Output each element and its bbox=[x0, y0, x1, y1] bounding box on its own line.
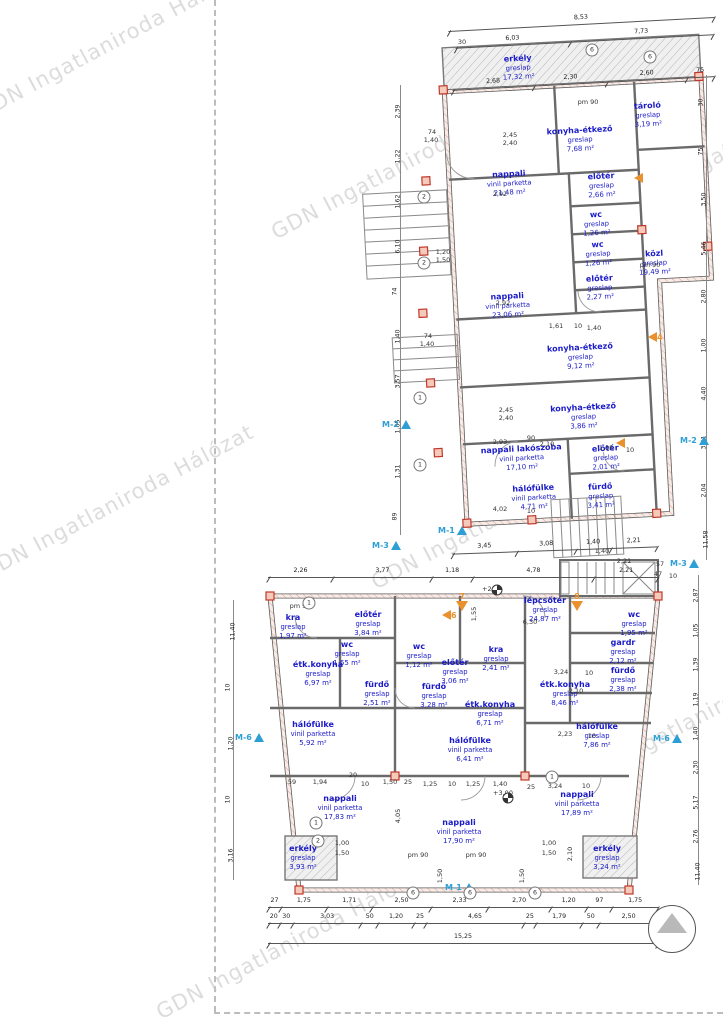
room-name: fürdő bbox=[609, 666, 636, 676]
north-arrow-needle bbox=[657, 913, 687, 933]
dimension-segment: 74 bbox=[392, 287, 399, 295]
dimension-segment: 1,31 bbox=[395, 464, 402, 478]
room-finish: greslap bbox=[576, 732, 618, 741]
room-label: erkélygreslap3,24 m² bbox=[593, 844, 621, 872]
section-marker-triangle-icon bbox=[401, 420, 411, 429]
room-finish: greslap bbox=[354, 620, 381, 629]
room-finish: greslap bbox=[620, 620, 647, 629]
dimension-segment: 1,20 bbox=[551, 897, 587, 908]
room-label: nappalivinil parketta17,83 m² bbox=[318, 794, 363, 822]
room-label: erkélygreslap3,93 m² bbox=[289, 844, 317, 872]
dimension-segment: 11,58 bbox=[703, 530, 710, 548]
dimension-segment: 89 bbox=[392, 512, 399, 520]
room-label: konyha-étkezőgreslap3,86 m² bbox=[550, 401, 617, 433]
room-finish: greslap bbox=[465, 710, 515, 719]
room-area: 17,90 m² bbox=[437, 837, 482, 846]
room-name: gardr bbox=[609, 638, 636, 648]
dimension-chain-row: 20303,03501,20254,65251,79502,50 bbox=[268, 913, 658, 924]
axis-number-circle: 1 bbox=[303, 597, 316, 610]
annotation-text: 10 bbox=[574, 322, 582, 330]
room-name: kra bbox=[482, 645, 509, 655]
dimension-segment: 1,00 bbox=[701, 338, 708, 352]
room-area: 6,97 m² bbox=[293, 679, 343, 688]
room-finish: greslap bbox=[405, 652, 432, 661]
dimension-segment: 2,21 bbox=[610, 536, 657, 549]
room-finish: greslap bbox=[420, 692, 447, 701]
room-name: hálófülke bbox=[291, 720, 336, 730]
room-name: nappali bbox=[555, 790, 600, 800]
dimension-segment: 15,25 bbox=[268, 933, 658, 944]
dimension-segment: 2,87 bbox=[693, 589, 700, 603]
room-name: hálófülke bbox=[576, 722, 618, 732]
room-name: kra bbox=[279, 613, 306, 623]
dimension-segment: 2,26 bbox=[268, 567, 333, 578]
dimension-segment: 5,46 bbox=[701, 241, 708, 255]
room-area: 3,06 m² bbox=[441, 677, 468, 686]
room-label: konyha-étkezőgreslap7,68 m² bbox=[546, 124, 613, 156]
room-finish: greslap bbox=[363, 690, 390, 699]
view-marker-7: 7 bbox=[456, 592, 468, 611]
section-marker-triangle-icon bbox=[689, 559, 699, 568]
section-marker-triangle-icon bbox=[254, 733, 264, 742]
floorplan-canvas: GDN Ingatlaniroda HálózatGDN Ingatlaniro… bbox=[0, 0, 723, 1024]
level-marker-icon bbox=[503, 793, 514, 804]
dimension-segment: 25 bbox=[524, 913, 537, 924]
dimension-segment: 1,75 bbox=[612, 897, 658, 908]
annotation-text: 1,50 bbox=[335, 849, 349, 857]
view-marker-label: 6 bbox=[451, 611, 457, 620]
section-marker-m-1: M-1 bbox=[438, 526, 467, 535]
north-compass-icon bbox=[648, 905, 696, 953]
room-area: 2,12 m² bbox=[609, 657, 636, 666]
dimension-segment: 50 bbox=[361, 913, 378, 924]
room-name: nappali bbox=[437, 818, 482, 828]
view-marker-label: 8 bbox=[574, 592, 580, 601]
room-label: előtérgreslap2,66 m² bbox=[587, 171, 616, 201]
annotation-text: pm 90 bbox=[408, 851, 429, 859]
axis-number-circle: 1 bbox=[414, 459, 427, 472]
annotation-text: 1,61 bbox=[549, 322, 563, 330]
dimension-segment: 2,50 bbox=[372, 897, 431, 908]
axis-number-circle: 6 bbox=[586, 44, 599, 57]
room-area: 8,46 m² bbox=[540, 699, 590, 708]
axis-number-circle: 2 bbox=[312, 835, 325, 848]
room-label: fürdőgreslap3,41 m² bbox=[586, 481, 615, 511]
room-label: nappalivinil parketta17,89 m² bbox=[555, 790, 600, 818]
annotation-text: 1,00 bbox=[335, 839, 349, 847]
annotation-text: 1,40 bbox=[424, 136, 438, 144]
axis-number-circle: 6 bbox=[407, 887, 420, 900]
room-label: wcgreslap1,12 m² bbox=[405, 642, 432, 670]
annotation-text: 74 bbox=[428, 128, 436, 136]
room-label: hálófülkegreslap7,86 m² bbox=[576, 722, 618, 750]
view-arrow-marker bbox=[634, 173, 643, 183]
room-label: nappalivinil parketta17,90 m² bbox=[437, 818, 482, 846]
room-label: fürdőgreslap2,38 m² bbox=[609, 666, 636, 694]
annotation-text: 2,10 bbox=[569, 687, 583, 695]
room-finish: greslap bbox=[593, 854, 621, 863]
dimension-segment: 4,40 bbox=[701, 387, 708, 401]
dimension-segment: 3,03 bbox=[293, 913, 361, 924]
annotation-text: 30 bbox=[458, 38, 466, 46]
annotation-text: 10 bbox=[585, 669, 593, 677]
section-marker-triangle-icon bbox=[391, 541, 401, 550]
annotation-text: 10 bbox=[448, 780, 456, 788]
dimension-segment: 30 bbox=[280, 913, 293, 924]
room-label: hálófülkevinil parketta6,41 m² bbox=[448, 736, 493, 764]
dimension-segment: 1,79 bbox=[536, 913, 582, 924]
section-marker-m-3: M-3 bbox=[670, 559, 699, 568]
dimension-segment: 11,40 bbox=[230, 622, 237, 640]
annotation-text: 1,40 bbox=[493, 780, 507, 788]
dimension-segment: 10 bbox=[225, 795, 232, 803]
section-marker-triangle-icon bbox=[672, 734, 682, 743]
room-label: konyha-étkezőgreslap9,12 m² bbox=[547, 341, 614, 373]
dimension-segment: 27 bbox=[268, 897, 281, 908]
annotation-text: 1,94 bbox=[313, 778, 327, 786]
annotation-text: 4,05 bbox=[394, 809, 402, 823]
dimension-segment: 3,45 bbox=[452, 541, 517, 554]
dimension-segment: 2,04 bbox=[701, 484, 708, 498]
annotation-text: 25 bbox=[527, 783, 535, 791]
section-marker-triangle-icon bbox=[699, 436, 709, 445]
annotation-text: 10 bbox=[361, 780, 369, 788]
dimension-segment: 3,08 bbox=[517, 539, 577, 552]
dimension-segment: 1,05 bbox=[693, 623, 700, 637]
room-name: nappali bbox=[318, 794, 363, 804]
annotation-text: 25 bbox=[404, 778, 412, 786]
room-finish: greslap bbox=[482, 655, 509, 664]
room-area: 3,24 m² bbox=[593, 863, 621, 872]
room-area: 7,86 m² bbox=[576, 741, 618, 750]
annotation-text: 2,21 bbox=[617, 557, 631, 565]
room-area: 3,41 m² bbox=[587, 501, 615, 512]
room-name: előtér bbox=[441, 658, 468, 668]
room-name: étk.konyha bbox=[293, 660, 343, 670]
dimension-segment: 1,18 bbox=[432, 567, 473, 578]
room-name: hálófülke bbox=[448, 736, 493, 746]
dimension-chain-row: 271,751,712,502,332,701,20971,75 bbox=[268, 897, 658, 908]
dimension-segment: 3,77 bbox=[333, 567, 432, 578]
annotation-text: 1,50 bbox=[436, 256, 450, 264]
section-marker-label: M-2 bbox=[382, 420, 399, 429]
annotation-text: 1,00 bbox=[542, 839, 556, 847]
room-label: előtérgreslap3,84 m² bbox=[354, 610, 381, 638]
dimension-segment: 3,50 bbox=[701, 193, 708, 207]
room-label: étk.konyhagreslap6,71 m² bbox=[465, 700, 515, 728]
annotation-text: 2,93 bbox=[493, 438, 507, 446]
axis-number-circle: 6 bbox=[529, 887, 542, 900]
room-area: 2,51 m² bbox=[363, 699, 390, 708]
dimension-segment: 1,20 bbox=[378, 913, 414, 924]
room-finish: vinil parketta bbox=[437, 828, 482, 837]
room-finish: vinil parketta bbox=[318, 804, 363, 813]
dimension-segment: 1,40 bbox=[395, 329, 402, 343]
annotation-text: 59 bbox=[288, 778, 296, 786]
room-finish: greslap bbox=[441, 668, 468, 677]
dimension-segment: 4,65 bbox=[426, 913, 523, 924]
annotation-text: 1,20 bbox=[436, 248, 450, 256]
room-label: wcgreslap1,26 m² bbox=[584, 239, 613, 269]
annotation-text: 2,92 bbox=[496, 299, 510, 307]
axis-number-circle: 1 bbox=[414, 392, 427, 405]
annotation-text: 1,25 bbox=[423, 780, 437, 788]
room-area: 1,97 m² bbox=[279, 632, 306, 641]
annotation-text: 74 bbox=[424, 332, 432, 340]
room-name: wc bbox=[405, 642, 432, 652]
annotation-text: 2,45 bbox=[499, 406, 513, 414]
axis-number-circle: 6 bbox=[464, 887, 477, 900]
room-label: wcgreslap1,95 m² bbox=[620, 610, 647, 638]
dimension-segment: 97 bbox=[587, 897, 613, 908]
annotation-text: 57 bbox=[656, 560, 664, 568]
annotation-text: 6,30 bbox=[523, 618, 537, 626]
dimension-segment: 20 bbox=[268, 913, 280, 924]
room-area: 2,38 m² bbox=[609, 685, 636, 694]
section-marker-m-6: M-6 bbox=[235, 733, 264, 742]
dimension-segment: 3,16 bbox=[228, 848, 235, 862]
annotation-text: 1,40 bbox=[587, 324, 601, 332]
view-marker-triangle-icon bbox=[634, 173, 643, 183]
room-area: 2,66 m² bbox=[588, 190, 616, 201]
section-marker-m-3: M-3 bbox=[372, 541, 401, 550]
view-marker-6: 6 bbox=[442, 610, 457, 620]
room-name: erkély bbox=[593, 844, 621, 854]
dimension-segment: 2,21 bbox=[594, 567, 658, 578]
section-marker-label: M-1 bbox=[445, 883, 462, 892]
room-area: 1,12 m² bbox=[405, 661, 432, 670]
annotation-text: 10 bbox=[626, 446, 634, 454]
view-marker-label: 7 bbox=[459, 592, 465, 601]
room-area: 2,41 m² bbox=[482, 664, 509, 673]
room-area: 3,84 m² bbox=[354, 629, 381, 638]
annotation-text: 1,05 bbox=[599, 444, 613, 452]
axis-number-circle: 2 bbox=[418, 191, 431, 204]
annotation-text: 2,40 bbox=[499, 414, 513, 422]
annotation-text: 2,23 bbox=[558, 730, 572, 738]
upper-floor-plan: erkélygreslap17,32 m²konyha-étkezőgresla… bbox=[346, 6, 723, 579]
section-marker-m-2: M-2 bbox=[382, 420, 411, 429]
dimension-segment: 2,80 bbox=[701, 290, 708, 304]
dimension-segment: 4,78 bbox=[473, 567, 595, 578]
room-label: tárológreslap3,19 m² bbox=[633, 100, 662, 130]
annotation-text: 1,50 bbox=[436, 869, 444, 883]
view-marker-4: 4 bbox=[648, 332, 663, 342]
dimension-segment: 2,70 bbox=[488, 897, 551, 908]
room-area: 6,41 m² bbox=[448, 755, 493, 764]
annotation-text: 4,02 bbox=[493, 505, 507, 513]
dimension-segment: 75 bbox=[686, 66, 714, 78]
annotation-text: 1,40 bbox=[595, 547, 609, 555]
dimension-chain-row: 15,25 bbox=[268, 933, 658, 944]
dimension-segment: 75 bbox=[698, 147, 705, 155]
section-marker-label: M-6 bbox=[653, 734, 670, 743]
dimension-chain-row: 2,263,771,184,782,21 bbox=[268, 567, 658, 578]
room-finish: greslap bbox=[333, 650, 360, 659]
dimension-segment: 2,76 bbox=[693, 830, 700, 844]
room-label: fürdőgreslap2,51 m² bbox=[363, 680, 390, 708]
annotation-text: 10 bbox=[582, 782, 590, 790]
section-marker-m-2: M-2 bbox=[680, 436, 709, 445]
annotation-text: 1,25 bbox=[466, 780, 480, 788]
dimension-segment: 2,33 bbox=[431, 897, 487, 908]
axis-number-circle: 6 bbox=[644, 51, 657, 64]
annotation-text: pm 90 bbox=[578, 98, 599, 106]
section-marker-m-6: M-6 bbox=[653, 734, 682, 743]
annotation-text: 47 bbox=[654, 570, 662, 578]
view-marker-triangle-icon bbox=[442, 610, 451, 620]
room-area: 2,01 m² bbox=[592, 462, 620, 473]
room-finish: vinil parketta bbox=[291, 730, 336, 739]
annotation-text: 90 bbox=[527, 434, 535, 442]
room-finish: greslap bbox=[609, 676, 636, 685]
room-finish: greslap bbox=[279, 623, 306, 632]
room-finish: greslap bbox=[293, 670, 343, 679]
view-arrow-marker bbox=[616, 438, 625, 448]
dimension-segment: 1,40 bbox=[693, 726, 700, 740]
dimension-segment: 1,39 bbox=[693, 658, 700, 672]
dimension-segment: 30 bbox=[698, 99, 705, 107]
annotation-text: pm 90 bbox=[466, 851, 487, 859]
axis-number-circle: 2 bbox=[418, 257, 431, 270]
room-area: 17,83 m² bbox=[318, 813, 363, 822]
view-marker-8: 8 bbox=[571, 592, 583, 611]
room-label: kragreslap2,41 m² bbox=[482, 645, 509, 673]
view-marker-label: 4 bbox=[657, 333, 663, 342]
room-label: kragreslap1,97 m² bbox=[279, 613, 306, 641]
level-marker-icon bbox=[492, 585, 503, 596]
axis-number-circle: 1 bbox=[546, 771, 559, 784]
room-label: előtérgreslap2,27 m² bbox=[585, 273, 614, 303]
section-marker-label: M-2 bbox=[680, 436, 697, 445]
view-marker-triangle-icon bbox=[571, 601, 583, 611]
room-label: étk.konyhagreslap6,97 m² bbox=[293, 660, 343, 688]
upper-room-labels: erkélygreslap17,32 m²konyha-étkezőgresla… bbox=[346, 6, 723, 579]
property-boundary-line-vertical bbox=[214, 0, 216, 1012]
room-name: wc bbox=[333, 640, 360, 650]
dimension-segment: 1,20 bbox=[228, 736, 235, 750]
room-name: étk.konyha bbox=[465, 700, 515, 710]
section-marker-label: M-3 bbox=[372, 541, 389, 550]
room-area: 17,89 m² bbox=[555, 809, 600, 818]
room-finish: vinil parketta bbox=[448, 746, 493, 755]
dimension-segment: 6,10 bbox=[395, 239, 402, 253]
room-area: 1,95 m² bbox=[620, 629, 647, 638]
view-marker-triangle-icon bbox=[616, 438, 625, 448]
dimension-segment: 11,40 bbox=[695, 862, 702, 880]
room-area: 5,92 m² bbox=[291, 739, 336, 748]
section-marker-triangle-icon bbox=[457, 526, 467, 535]
annotation-text: 2,92 bbox=[493, 190, 507, 198]
dimension-segment: 10 bbox=[225, 683, 232, 691]
annotation-text: 10 bbox=[588, 732, 596, 740]
room-name: fürdő bbox=[363, 680, 390, 690]
annotation-text: 1,50 bbox=[518, 869, 526, 883]
annotation-text: 1,50 bbox=[383, 778, 397, 786]
annotation-text: 10 bbox=[669, 572, 677, 580]
room-finish: greslap bbox=[524, 606, 566, 615]
annotation-text: 2,10 bbox=[540, 440, 554, 448]
dimension-segment: 5,17 bbox=[693, 795, 700, 809]
room-area: 23,06 m² bbox=[486, 310, 531, 321]
section-marker-label: M-1 bbox=[438, 526, 455, 535]
room-name: wc bbox=[620, 610, 647, 620]
dimension-segment: 2,30 bbox=[693, 761, 700, 775]
annotation-text: pm 90 bbox=[640, 261, 661, 269]
dimension-segment: 1,19 bbox=[693, 692, 700, 706]
annotation-text: 1,50 bbox=[542, 849, 556, 857]
annotation-text: 2,45 bbox=[503, 131, 517, 139]
room-name: lépcsőtér bbox=[524, 596, 566, 606]
dimension-segment: 50 bbox=[582, 913, 599, 924]
room-label: wcgreslap1,26 m² bbox=[582, 209, 611, 239]
room-area: 2,27 m² bbox=[586, 292, 614, 303]
room-area: 6,71 m² bbox=[465, 719, 515, 728]
annotation-text: 2,40 bbox=[503, 139, 517, 147]
property-boundary-line-horizontal bbox=[214, 1012, 723, 1014]
room-area: 3,28 m² bbox=[420, 701, 447, 710]
dimension-segment: 1,75 bbox=[281, 897, 327, 908]
room-finish: vinil parketta bbox=[555, 800, 600, 809]
view-marker-triangle-icon bbox=[456, 601, 468, 611]
room-area: 19,49 m² bbox=[639, 267, 671, 278]
annotation-text: 3,24 bbox=[554, 668, 568, 676]
watermark-text: GDN Ingatlaniroda Hálózat bbox=[0, 420, 258, 584]
room-area: 1,26 m² bbox=[585, 258, 613, 269]
annotation-text: 10 bbox=[527, 507, 535, 515]
room-label: hálófülkevinil parketta5,92 m² bbox=[291, 720, 336, 748]
room-label: gardrgreslap2,12 m² bbox=[609, 638, 636, 666]
section-marker-label: M-6 bbox=[235, 733, 252, 742]
dimension-segment: 1,62 bbox=[395, 194, 402, 208]
section-marker-label: M-3 bbox=[670, 559, 687, 568]
dimension-segment: 1,22 bbox=[395, 149, 402, 163]
axis-number-circle: 1 bbox=[310, 817, 323, 830]
annotation-text: 2,10 bbox=[566, 847, 574, 861]
room-area: 3,93 m² bbox=[289, 863, 317, 872]
dimension-segment: 25 bbox=[414, 913, 427, 924]
room-area: 3,19 m² bbox=[634, 120, 662, 131]
annotation-text: 20 bbox=[349, 771, 357, 779]
dimension-segment: 3,57 bbox=[395, 374, 402, 388]
annotation-text: 1,55 bbox=[470, 607, 478, 621]
annotation-text: 1,40 bbox=[420, 340, 434, 348]
room-name: előtér bbox=[354, 610, 381, 620]
dimension-segment: 1,71 bbox=[327, 897, 372, 908]
room-finish: greslap bbox=[609, 648, 636, 657]
room-label: előtérgreslap3,06 m² bbox=[441, 658, 468, 686]
dimension-segment: 2,39 bbox=[395, 104, 402, 118]
view-marker-triangle-icon bbox=[648, 332, 657, 342]
room-area: 1,26 m² bbox=[583, 229, 611, 240]
room-finish: greslap bbox=[289, 854, 317, 863]
